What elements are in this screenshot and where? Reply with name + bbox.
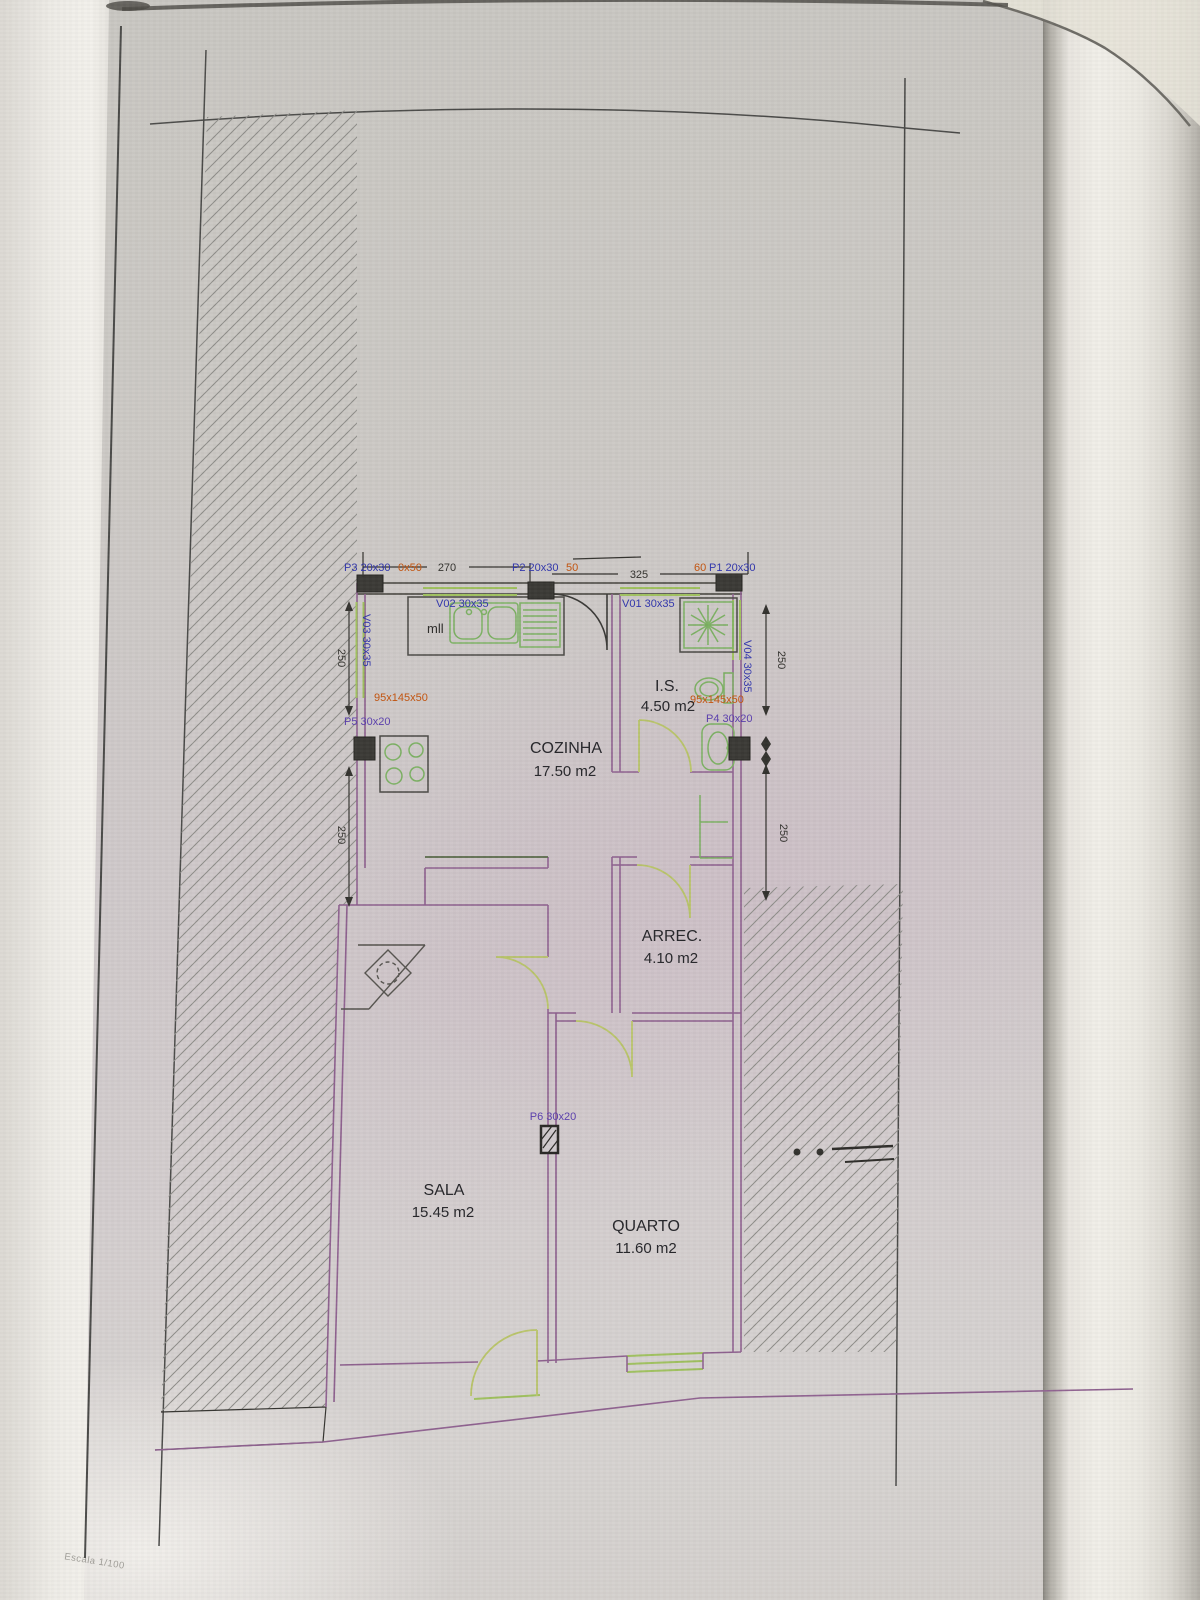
hatched-area-left bbox=[155, 110, 357, 1450]
room-label-cozinha: COZINHA bbox=[530, 740, 602, 757]
label-p3: P3 20x30 bbox=[344, 562, 390, 574]
pillars bbox=[354, 574, 750, 1153]
label-counter-left: 95x145x50 bbox=[374, 692, 428, 704]
room-area-sala: 15.45 m2 bbox=[412, 1204, 475, 1221]
label-p1: P1 20x30 bbox=[709, 562, 755, 574]
shower bbox=[680, 598, 737, 652]
top-left-smudge bbox=[106, 1, 150, 11]
floor-plan-drawing: P3 20x30 0x50 270 P2 20x30 50 325 60 P1 … bbox=[0, 0, 1200, 1600]
dim-right-upper: 250 bbox=[775, 651, 787, 669]
label-p5: P5 30x20 bbox=[344, 716, 390, 728]
dim-left-upper: 250 bbox=[335, 649, 347, 667]
label-counter-right: 95x145x50 bbox=[690, 694, 744, 706]
room-area-cozinha: 17.50 m2 bbox=[534, 763, 597, 780]
room-area-is: 4.50 m2 bbox=[641, 698, 695, 715]
pillar-p4 bbox=[729, 737, 750, 760]
label-v01: V01 30x35 bbox=[622, 598, 675, 610]
dim-right-lower: 250 bbox=[777, 824, 789, 842]
room-area-arrec: 4.10 m2 bbox=[644, 950, 698, 967]
hall-cabinet bbox=[700, 795, 733, 858]
dim-top-left: 270 bbox=[438, 562, 456, 574]
label-p1-note: 60 bbox=[694, 562, 706, 574]
label-p4: P4 30x20 bbox=[706, 713, 752, 725]
label-p2-note: 50 bbox=[566, 562, 578, 574]
room-label-sala: SALA bbox=[424, 1182, 465, 1199]
room-label-is: I.S. bbox=[655, 678, 679, 695]
corner-fireplace bbox=[341, 945, 425, 1009]
pillar-p5 bbox=[354, 737, 375, 760]
room-label-arrec: ARREC. bbox=[642, 928, 702, 945]
annotation-labels: P3 20x30 0x50 270 P2 20x30 50 325 60 P1 … bbox=[335, 562, 789, 1123]
photographed-floor-plan-page: P3 20x30 0x50 270 P2 20x30 50 325 60 P1 … bbox=[0, 0, 1200, 1600]
pillar-p2 bbox=[528, 582, 554, 599]
dim-left-lower: 250 bbox=[335, 826, 347, 844]
label-p3-note: 0x50 bbox=[398, 562, 422, 574]
interior-doors bbox=[471, 720, 691, 1396]
dimension-lines bbox=[345, 552, 771, 907]
label-p6: P6 30x20 bbox=[530, 1111, 576, 1123]
hatched-area-right bbox=[744, 884, 903, 1352]
room-area-quarto: 11.60 m2 bbox=[615, 1240, 676, 1257]
pillar-p6 bbox=[541, 1126, 558, 1153]
page-top-edge bbox=[122, 0, 1008, 9]
label-v03: V03 30x35 bbox=[360, 614, 372, 667]
page-curl-top-corner bbox=[983, 0, 1200, 126]
pillar-p3 bbox=[357, 575, 383, 592]
room-labels: COZINHA 17.50 m2 I.S. 4.50 m2 ARREC. 4.1… bbox=[412, 678, 703, 1257]
label-v04: V04 30x35 bbox=[741, 640, 753, 693]
kitchen-note: mll bbox=[427, 621, 444, 636]
pillar-p1 bbox=[716, 574, 742, 591]
label-v02: V02 30x35 bbox=[436, 598, 489, 610]
kitchen-stove bbox=[380, 736, 428, 792]
dim-top-right: 325 bbox=[630, 569, 648, 581]
label-p2: P2 20x30 bbox=[512, 562, 558, 574]
room-label-quarto: QUARTO bbox=[612, 1218, 680, 1235]
